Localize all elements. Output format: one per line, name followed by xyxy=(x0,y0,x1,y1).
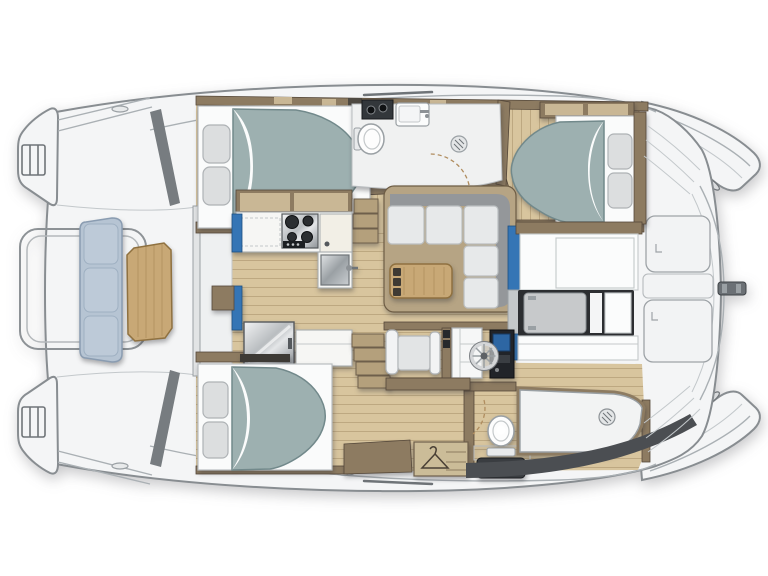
bedside-slot xyxy=(240,354,290,362)
galley-aft-counter xyxy=(296,330,352,366)
pillow xyxy=(608,134,632,169)
stove xyxy=(282,214,318,248)
sofa-cushion xyxy=(388,206,424,244)
port-cabinet xyxy=(344,440,412,474)
pillow xyxy=(203,382,228,418)
shower-drain xyxy=(451,136,467,152)
companionway-wall-fwd xyxy=(232,214,242,252)
locker-hatch-bottom xyxy=(644,300,712,362)
wardrobe-with-hanger xyxy=(414,442,468,476)
cockpit-table xyxy=(127,243,172,341)
pillow xyxy=(203,125,230,163)
owner-bath-wall-top xyxy=(464,382,516,391)
companionway-steps-port xyxy=(352,334,390,388)
sofa-cushion xyxy=(464,246,498,276)
sink xyxy=(318,252,358,288)
platform-center-panel xyxy=(643,274,713,298)
pillow xyxy=(203,422,228,458)
sofa-cushion xyxy=(464,206,498,244)
pillow xyxy=(608,173,632,208)
toilet xyxy=(354,124,384,154)
pillow xyxy=(203,167,230,205)
aft-cockpit xyxy=(508,222,642,360)
vanity-shelf xyxy=(386,378,470,390)
cockpit-step xyxy=(518,336,638,360)
starboard-bathroom xyxy=(352,100,502,189)
hanging-locker xyxy=(634,112,646,224)
deck-plan-canvas xyxy=(0,0,768,576)
counter-panel xyxy=(320,214,352,252)
helm-wheel xyxy=(470,342,499,371)
cleat-fitting xyxy=(718,282,746,295)
washbasin xyxy=(396,103,429,126)
cockpit-bench-seat xyxy=(80,218,122,362)
vanity-seat xyxy=(386,330,440,374)
companionway-steps-starboard xyxy=(352,199,378,243)
cockpit-bench xyxy=(520,234,638,290)
coffee-table xyxy=(390,264,452,298)
sofa-cushion xyxy=(426,206,462,244)
port-forward-cabin xyxy=(198,354,332,470)
cockpit-panel xyxy=(605,293,631,333)
sofa-cushion xyxy=(464,278,498,308)
cooktop-unit xyxy=(362,100,393,119)
catamaran-floor-plan xyxy=(0,0,768,576)
hatch-divider xyxy=(590,293,602,333)
aft-glazing-top xyxy=(508,226,520,290)
